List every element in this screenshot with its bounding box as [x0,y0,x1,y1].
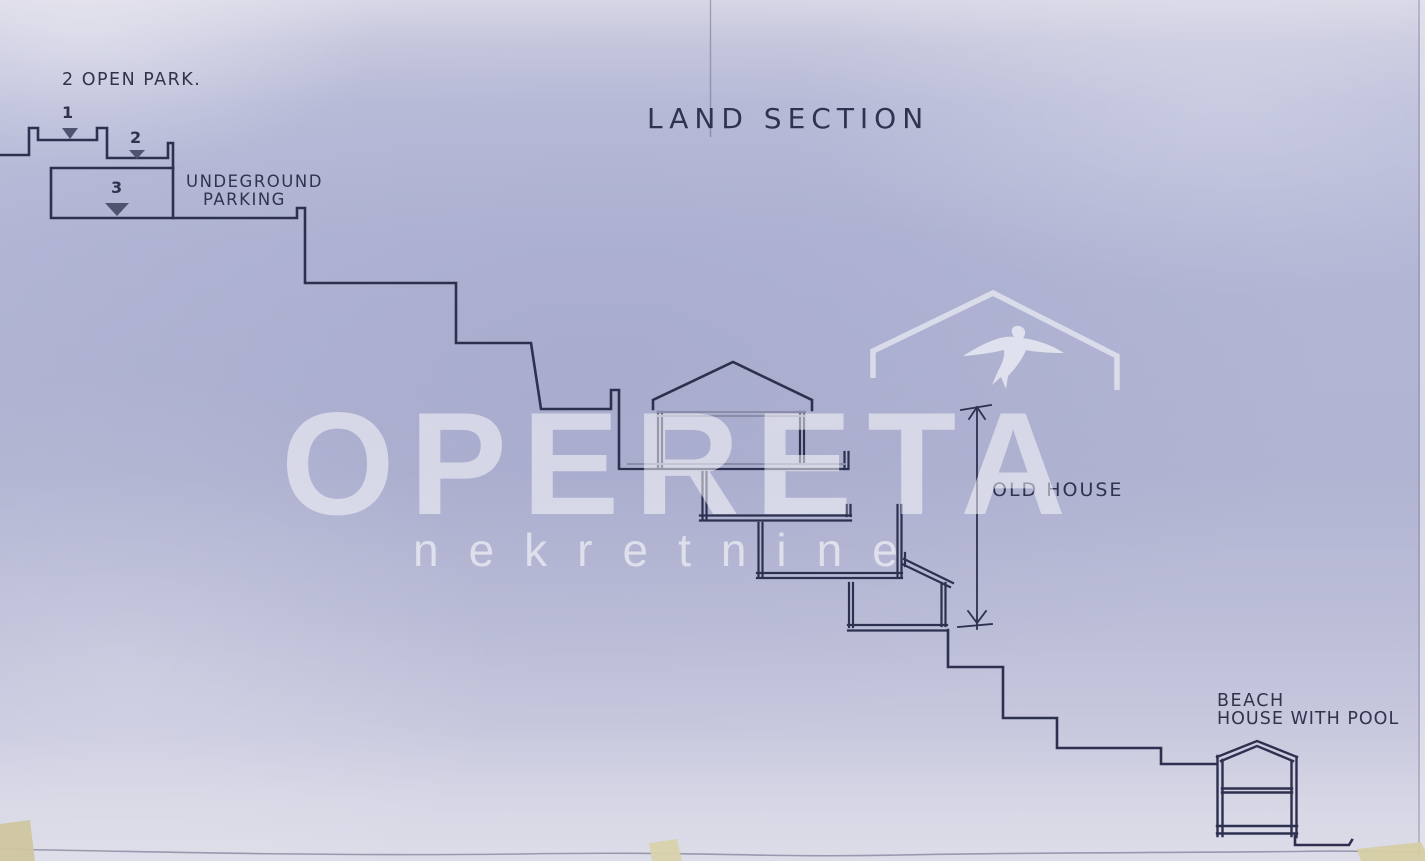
tape-layer [0,0,1425,861]
scanned-land-section-drawing: LAND SECTION 2 OPEN PARK. 1 2 3 UNDEGROU… [0,0,1425,861]
tape-bottom-left [0,820,35,861]
tape-bottom-right [1357,842,1425,861]
tape-bottom-center [649,839,682,861]
